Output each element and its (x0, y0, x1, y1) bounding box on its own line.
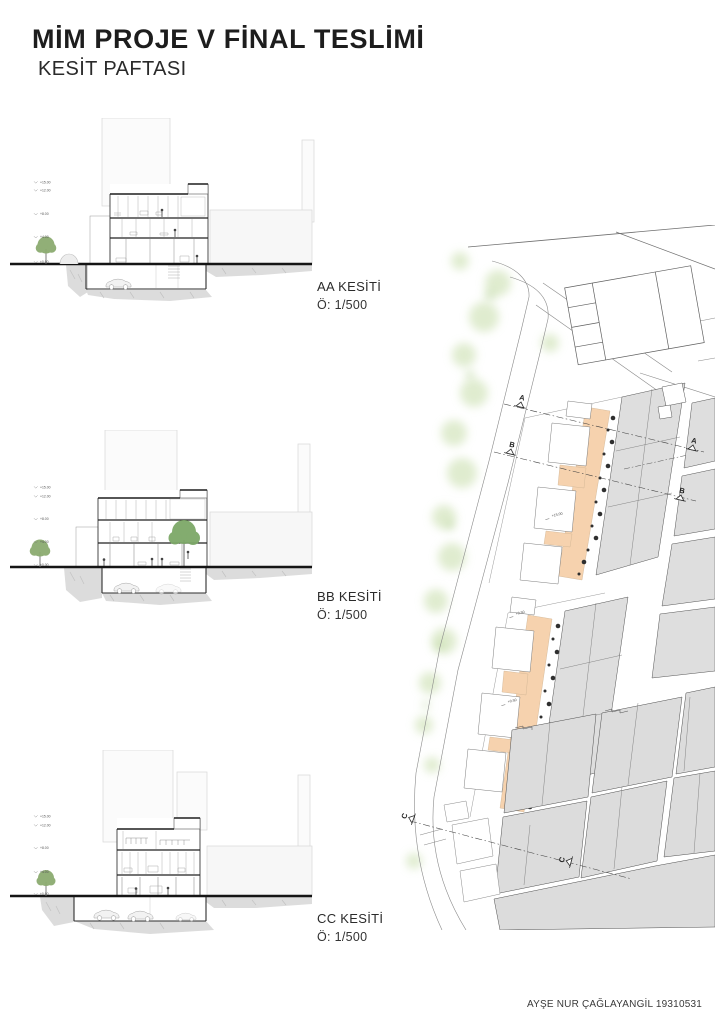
cc-earth (40, 897, 312, 934)
bb-basement (102, 567, 206, 594)
outline-buildings-bottom-left (444, 801, 500, 902)
cc-building-cut (117, 818, 200, 896)
top-right-building (565, 266, 705, 365)
elevation-label: +12.00 (40, 494, 51, 498)
marker-letter: C (400, 811, 410, 820)
elevation-label: +15.00 (40, 180, 51, 184)
cc-basement (74, 896, 206, 921)
elevation-label: ±0.00 (40, 260, 49, 264)
site-plan: A B A B C C (400, 225, 715, 930)
car-icon (106, 279, 131, 289)
elevation-label: ±0.00 (40, 892, 49, 896)
car-icon (176, 913, 196, 921)
author-credit: AYŞE NUR ÇAĞLAYANGİL 19310531 (527, 999, 702, 1010)
elevation-label: +8.00 (40, 846, 49, 850)
aa-basement (86, 264, 206, 289)
section-bb-drawing: +15.00 +12.00 +8.00 +4.00 ±0.00 (10, 430, 320, 620)
section-cc-label: CC KESİTİ (317, 909, 383, 928)
marker-letter: A (518, 393, 526, 403)
caption-bb: BB KESİTİ Ö: 1/500 (317, 587, 382, 625)
elevation-label: +8.00 (40, 517, 49, 521)
marker-letter: B (508, 440, 516, 450)
plan-elevation-annotation: +0.50 (515, 610, 525, 616)
section-cc-scale: Ö: 1/500 (317, 928, 383, 947)
car-icon (114, 583, 139, 593)
section-aa-drawing: +15.00 +12.00 +8.00 +4.00 ±0.00 (10, 118, 320, 308)
aa-mound (60, 254, 78, 264)
section-aa-label: AA KESİTİ (317, 277, 381, 296)
aa-earth (66, 265, 312, 301)
elevation-label: +12.00 (40, 188, 51, 192)
elevation-label: +4.00 (40, 540, 49, 544)
elevation-label: +12.00 (40, 823, 51, 827)
section-bb-label: BB KESİTİ (317, 587, 382, 606)
page-title: MİM PROJE V FİNAL TESLİMİ (32, 24, 425, 55)
bb-earth (64, 568, 312, 605)
caption-aa: AA KESİTİ Ö: 1/500 (317, 277, 381, 315)
car-icon (128, 911, 153, 921)
page-subtitle: KESİT PAFTASI (38, 58, 187, 81)
elevation-label: ±0.00 (40, 563, 49, 567)
section-bb-scale: Ö: 1/500 (317, 606, 382, 625)
elevation-label: +4.00 (40, 235, 49, 239)
section-marker-a-left: A (514, 392, 529, 408)
elevation-label: +15.00 (40, 485, 51, 489)
presentation-sheet: MİM PROJE V FİNAL TESLİMİ KESİT PAFTASI (0, 0, 715, 1024)
elevation-label: +4.00 (40, 870, 49, 874)
elevation-label: +8.00 (40, 212, 49, 216)
caption-cc: CC KESİTİ Ö: 1/500 (317, 909, 383, 947)
section-cc-drawing: +15.00 +12.00 +8.00 +4.00 ±0.00 (10, 750, 320, 940)
section-marker-c-left: C (400, 809, 415, 825)
section-aa-scale: Ö: 1/500 (317, 296, 381, 315)
car-icon (94, 910, 119, 920)
bb-building-cut (76, 490, 207, 567)
elevation-label: +15.00 (40, 814, 51, 818)
